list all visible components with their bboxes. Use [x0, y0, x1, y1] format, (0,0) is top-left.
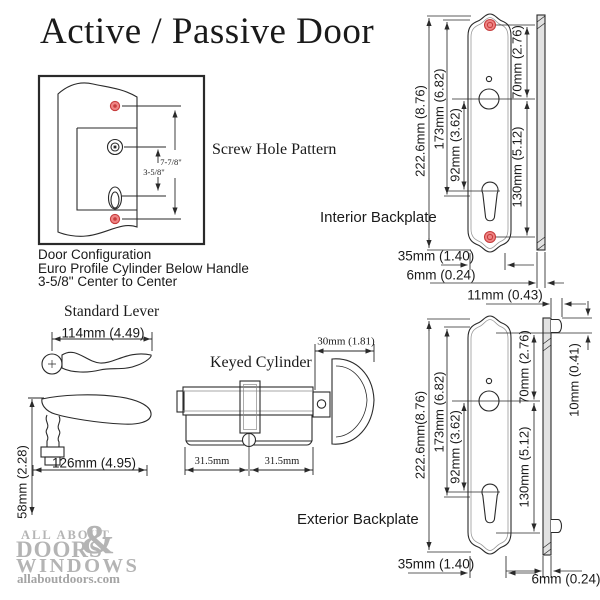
lever-width-dim: 114mm (4.49) — [61, 326, 144, 340]
cylinder-thumbturn-dim: 30mm (1.81) — [317, 337, 374, 348]
interior-backplate-label: Interior Backplate — [320, 210, 437, 225]
interior-screw-spacing-dim: 173mm (6.82) — [433, 69, 446, 150]
exterior-backplate-label: Exterior Backplate — [297, 512, 419, 527]
mounting-tab — [551, 520, 562, 533]
lever-height-dim: 58mm (2.28) — [16, 445, 29, 519]
exterior-width-dim: 35mm (1.40) — [398, 557, 475, 571]
interior-top-to-handle-dim: 70mm (2.76) — [511, 25, 524, 99]
side-profile — [543, 318, 551, 555]
cylinder-left-dim: 31.5mm — [195, 457, 230, 468]
euro-keyhole — [482, 182, 498, 221]
lever-length-dim: 126mm (4.95) — [52, 456, 136, 470]
exterior-thickness-dim: 6mm (0.24) — [531, 572, 600, 586]
interior-width-dim: 35mm (1.40) — [398, 249, 475, 263]
interior-handle-to-cylinder-dim: 92mm (3.62) — [449, 108, 462, 182]
standard-lever-label: Standard Lever — [64, 304, 159, 320]
screw-hole-icon — [485, 20, 496, 243]
page-title: Active / Passive Door — [40, 13, 374, 50]
pattern-dim-outer: 7-7/8" — [159, 158, 182, 167]
keyhole — [109, 187, 122, 209]
exterior-overall-height-dim: 222.6mm(8.76) — [414, 391, 427, 479]
handle-hole — [108, 140, 123, 155]
handle-hole — [479, 391, 499, 411]
interior-thickness-dim: 6mm (0.24) — [406, 268, 475, 282]
door-configuration-text: Door Configuration Euro Profile Cylinder… — [38, 248, 249, 289]
keyed-cylinder-label: Keyed Cylinder — [210, 355, 312, 371]
door-config-line-3: 3-5/8" Center to Center — [38, 275, 249, 289]
screw-hole-icon — [110, 101, 119, 223]
door-config-line-2: Euro Profile Cylinder Below Handle — [38, 262, 249, 276]
screw-hole-pattern-label: Screw Hole Pattern — [212, 142, 336, 158]
exterior-tab-protrusion-dim: 11mm (0.43) — [467, 288, 543, 302]
mounting-tab — [551, 320, 562, 333]
interior-handle-to-bottom-dim: 130mm (5.12) — [511, 127, 524, 208]
cylinder-right-dim: 31.5mm — [265, 457, 300, 468]
door-config-line-1: Door Configuration — [38, 248, 249, 262]
exterior-tab-height-dim: 10mm (0.41) — [568, 343, 581, 417]
exterior-handle-to-cylinder-dim: 92mm (3.62) — [449, 410, 462, 484]
pattern-dim-inner: 3-5/8" — [142, 168, 165, 177]
side-profile — [537, 15, 545, 250]
exterior-screw-spacing-dim: 173mm (6.82) — [433, 372, 446, 453]
exterior-handle-to-bottom-dim: 130mm (5.12) — [518, 427, 531, 508]
euro-keyhole — [482, 484, 498, 523]
handle-hole — [479, 89, 499, 109]
exterior-top-to-handle-dim: 70mm (2.76) — [518, 330, 531, 404]
interior-overall-height-dim: 222.6mm (8.76) — [414, 85, 427, 177]
logo-website: allaboutdoors.com — [17, 572, 120, 585]
page: { "title": "Active / Passive Door", "scr… — [0, 0, 600, 600]
